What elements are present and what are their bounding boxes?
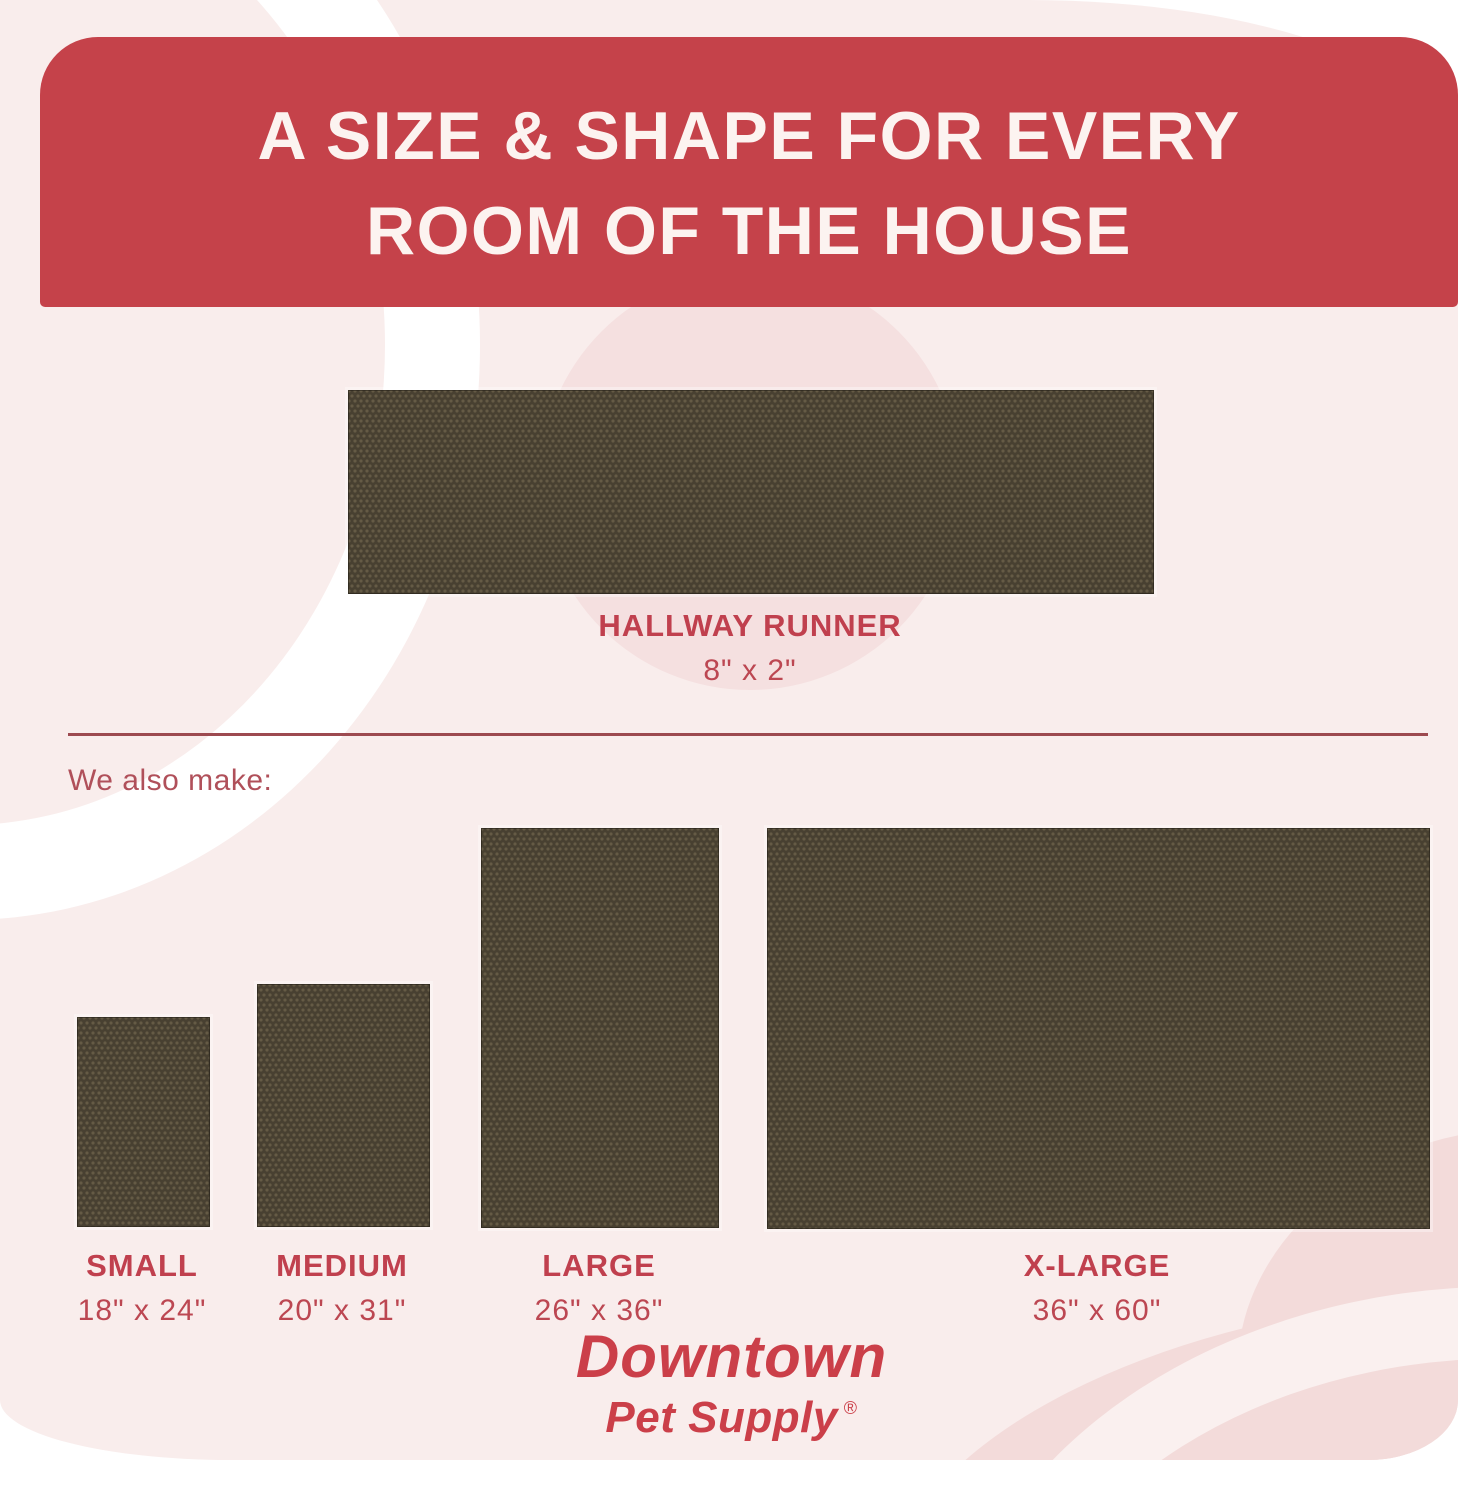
header-banner: A SIZE & SHAPE FOR EVERY ROOM OF THE HOU…: [40, 37, 1458, 307]
size-label-medium: MEDIUM 20" x 31": [202, 1248, 482, 1328]
mat-xlarge: [767, 828, 1430, 1229]
size-label-large: LARGE 26" x 36": [459, 1248, 739, 1328]
page-title: A SIZE & SHAPE FOR EVERY ROOM OF THE HOU…: [40, 89, 1458, 279]
hallway-runner-mat: [348, 390, 1154, 594]
page-title-line1: A SIZE & SHAPE FOR EVERY: [40, 89, 1458, 184]
size-name-medium: MEDIUM: [202, 1248, 482, 1284]
mat-small: [77, 1017, 210, 1227]
size-label-xlarge: X-LARGE 36" x 60": [957, 1248, 1237, 1328]
registered-trademark-icon: ®: [844, 1398, 858, 1418]
page-title-line2: ROOM OF THE HOUSE: [40, 184, 1458, 279]
brand-logo: Downtown Pet Supply®: [0, 1322, 1463, 1443]
hallway-runner-name: HALLWAY RUNNER: [450, 608, 1050, 644]
size-name-large: LARGE: [459, 1248, 739, 1284]
hallway-runner-dimensions: 8" x 2": [450, 654, 1050, 688]
also-make-label: We also make:: [68, 764, 272, 798]
size-name-xlarge: X-LARGE: [957, 1248, 1237, 1284]
hallway-runner-label: HALLWAY RUNNER 8" x 2": [450, 608, 1050, 688]
brand-subtitle-text: Pet Supply: [605, 1393, 837, 1442]
mat-large: [481, 828, 719, 1228]
brand-subtitle: Pet Supply®: [0, 1393, 1463, 1443]
brand-name: Downtown: [0, 1322, 1463, 1391]
divider-line: [68, 733, 1428, 736]
mat-medium: [257, 984, 430, 1227]
size-guide-infographic: A SIZE & SHAPE FOR EVERY ROOM OF THE HOU…: [0, 0, 1463, 1500]
